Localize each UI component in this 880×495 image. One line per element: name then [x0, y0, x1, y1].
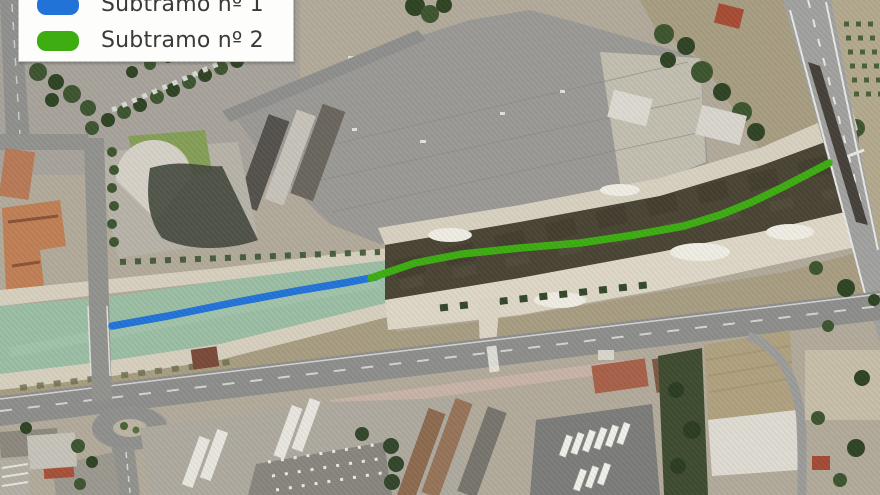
aerial-map-figure: Subtramo nº 1 Subtramo nº 2: [0, 0, 880, 495]
island-shrub-2: [133, 427, 140, 434]
street-junction: [0, 134, 88, 150]
subtramo-1-swatch: [37, 0, 79, 15]
subtramo-2-label: Subtramo nº 2: [101, 28, 264, 53]
map-legend: Subtramo nº 1 Subtramo nº 2: [18, 0, 294, 62]
legend-item-subtramo-1: Subtramo nº 1: [37, 0, 293, 18]
satellite-map: [0, 0, 880, 495]
vegetation-strip: [658, 348, 708, 495]
riverside-house: [191, 346, 220, 369]
island-shrub: [120, 422, 128, 430]
subtramo-2-swatch: [37, 31, 79, 51]
legend-item-subtramo-2: Subtramo nº 2: [37, 27, 293, 54]
white-field: [708, 410, 798, 476]
subtramo-1-label: Subtramo nº 1: [101, 0, 264, 17]
